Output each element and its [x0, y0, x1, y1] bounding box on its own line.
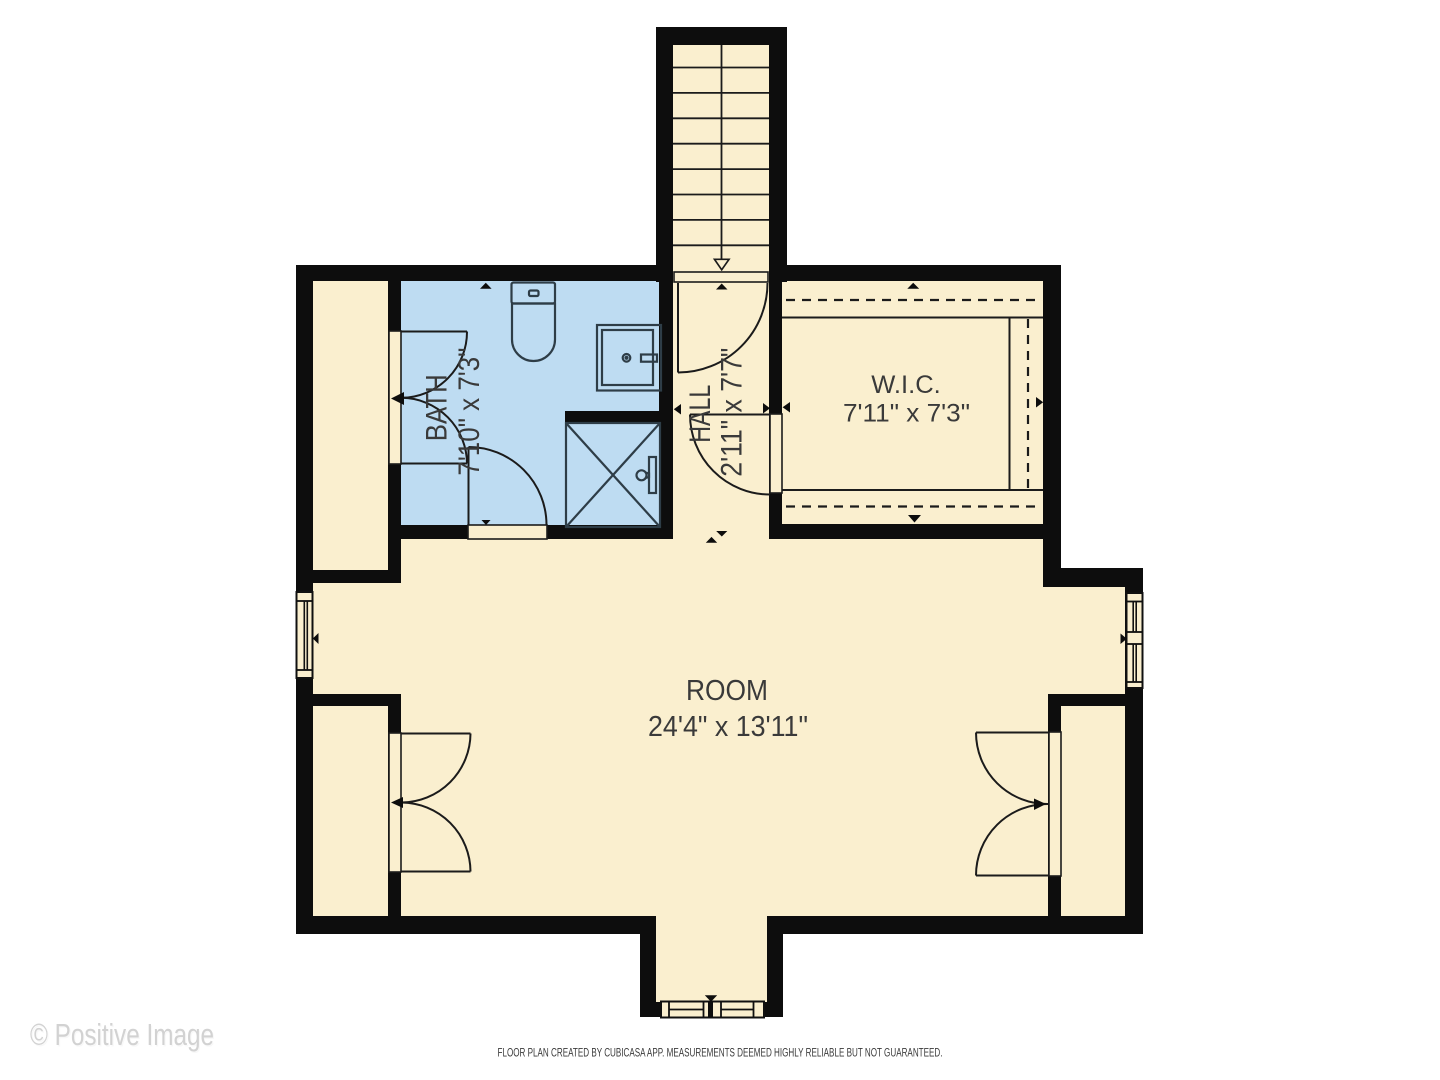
svg-text:ROOM: ROOM [686, 675, 768, 707]
svg-text:24'4" x 13'11": 24'4" x 13'11" [648, 711, 808, 743]
svg-text:7'11" x 7'3": 7'11" x 7'3" [843, 400, 970, 428]
svg-text:FLOOR PLAN CREATED BY CUBICASA: FLOOR PLAN CREATED BY CUBICASA APP. MEAS… [498, 1048, 943, 1060]
svg-text:W.I.C.: W.I.C. [871, 371, 941, 399]
svg-text:HALL: HALL [684, 385, 717, 443]
svg-text:2'11" x 7'7": 2'11" x 7'7" [716, 348, 749, 477]
svg-text:7'10" x 7'3": 7'10" x 7'3" [453, 348, 486, 476]
svg-text:BATH: BATH [420, 374, 453, 441]
svg-text:© Positive Image: © Positive Image [30, 1017, 214, 1052]
